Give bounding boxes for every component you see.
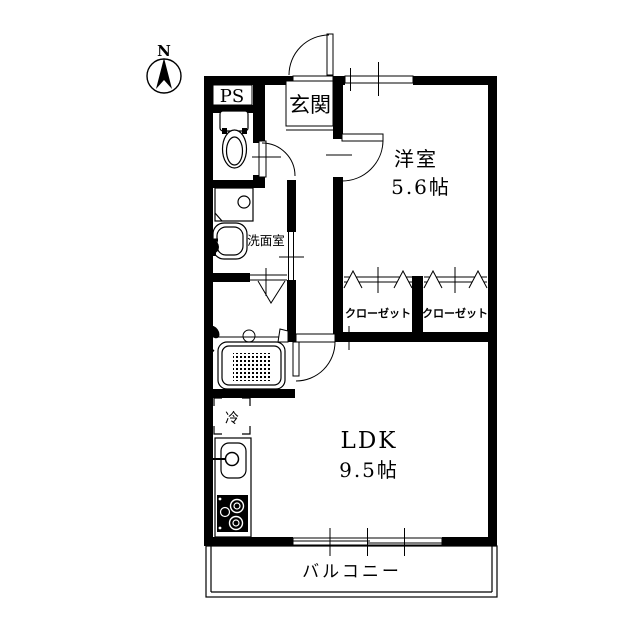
- bathtub-icon: [218, 342, 285, 389]
- kitchen-counter: [208, 438, 251, 537]
- ps-label: PS: [220, 86, 244, 107]
- stove-icon: [217, 495, 248, 532]
- western-room-size: 5.6帖: [391, 175, 451, 199]
- washing-machine-icon: [215, 188, 253, 221]
- ldk-size: 9.5帖: [339, 458, 399, 482]
- closet-left-label: クローゼット: [345, 306, 411, 320]
- ldk-label: LDK: [341, 428, 398, 454]
- washroom-label: 洗面室: [247, 233, 285, 248]
- toilet-icon: [220, 111, 248, 168]
- ps-space: PS: [213, 85, 252, 107]
- bath-counter: [278, 329, 288, 342]
- floorplan-svg: N: [0, 0, 640, 640]
- western-room-label: 洋室: [394, 147, 438, 171]
- refrigerator-label: 冷: [225, 411, 239, 427]
- balcony-label: バルコニー: [302, 562, 402, 582]
- floorplan-page: N: [0, 0, 640, 640]
- north-label: N: [157, 42, 171, 60]
- entrance-label: 玄関: [289, 93, 331, 117]
- closet-right-label: クローゼット: [422, 306, 488, 320]
